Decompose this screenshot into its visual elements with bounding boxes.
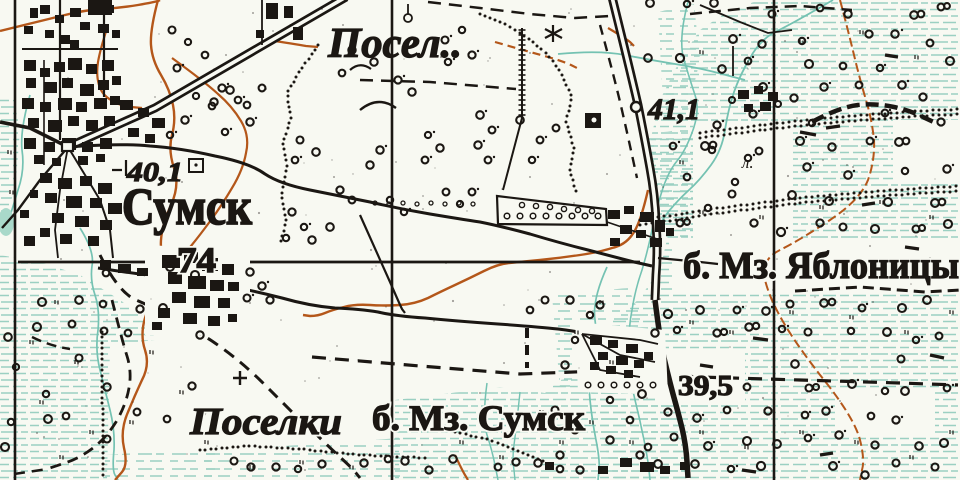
svg-text:б. Мз. Яблоницы: б. Мз. Яблоницы [683, 245, 959, 287]
svg-text:40,1: 40,1 [126, 157, 183, 187]
svg-text:74: 74 [177, 240, 216, 280]
svg-text:Сумск: Сумск [122, 179, 252, 236]
svg-text:Поселки: Поселки [189, 401, 342, 443]
svg-text:39,5: 39,5 [678, 371, 733, 402]
svg-text:41,1: 41,1 [647, 93, 700, 126]
svg-text:л.: л. [741, 153, 754, 172]
svg-text:б. Мз. Сумск: б. Мз. Сумск [372, 398, 585, 438]
svg-text:Посел..: Посел.. [327, 21, 462, 67]
